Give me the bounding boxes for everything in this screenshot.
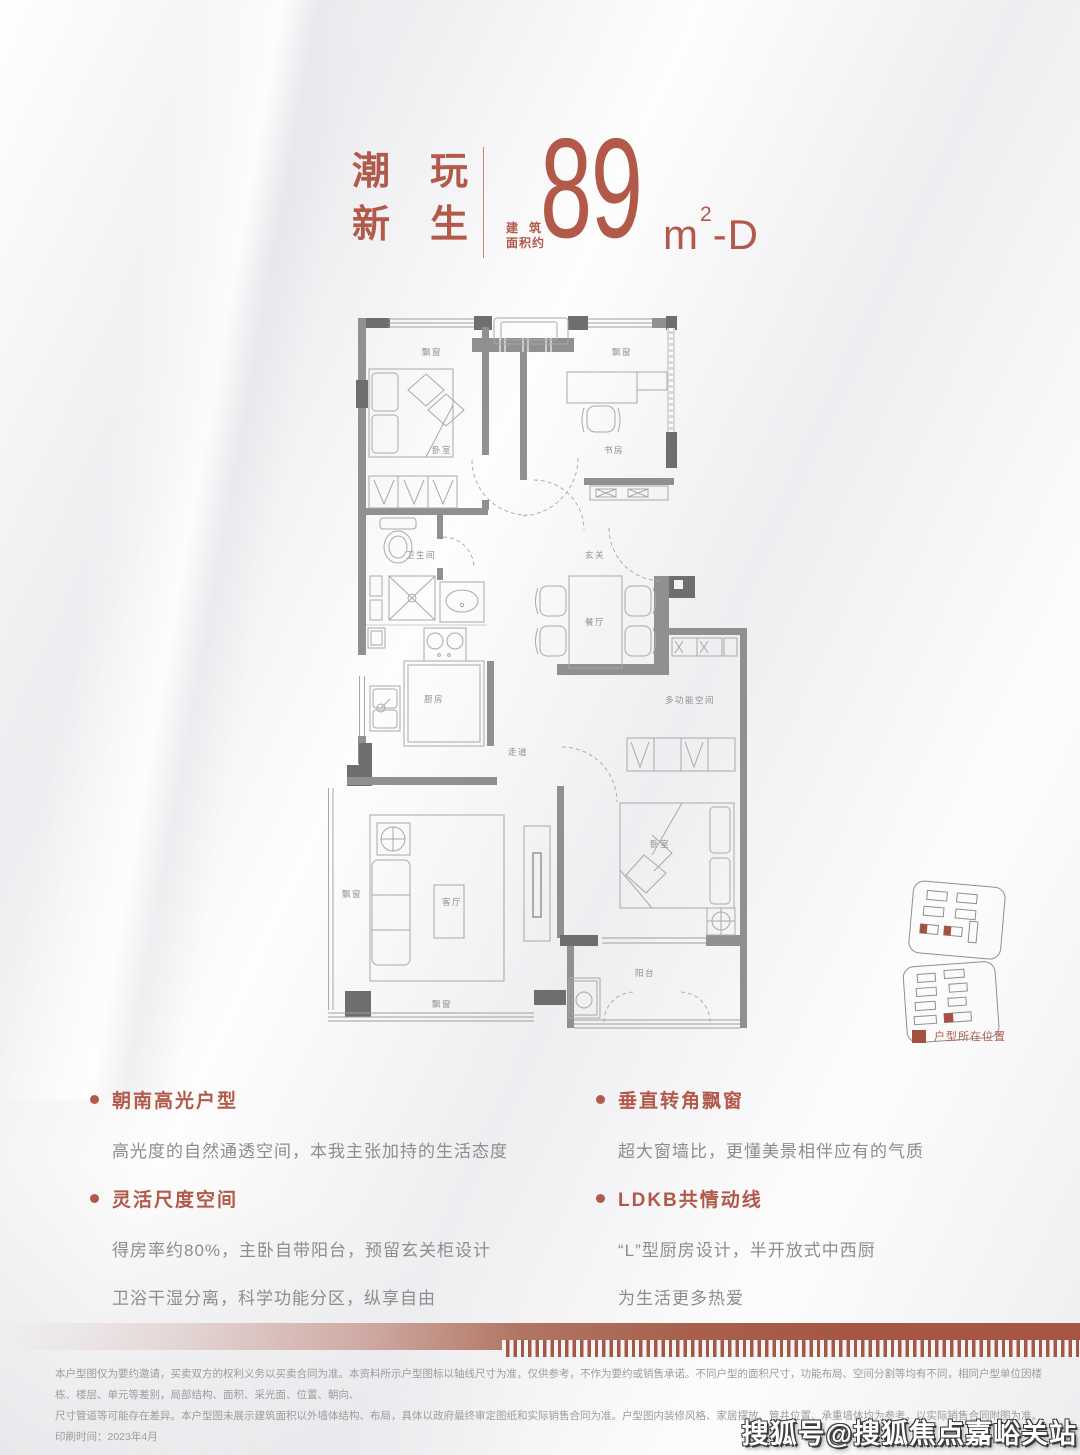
feature-block: 朝南高光户型 高光度的自然通透空间，本我主张加持的生活态度: [90, 1086, 560, 1162]
unit-suffix: -D: [713, 211, 759, 258]
siteplan-drawing: [893, 880, 1023, 1048]
label-study: 书房: [604, 445, 624, 455]
feature-heading-row: 垂直转角飘窗: [596, 1086, 1066, 1113]
feature-heading-row: LDKB共情动线: [596, 1185, 1066, 1212]
feature-block: LDKB共情动线 “L”型厨房设计，半开放式中西厨 为生活更多热爱: [596, 1185, 1066, 1309]
kitchen-fixtures: [368, 628, 484, 746]
features-right-column: 垂直转角飘窗 超大窗墙比，更懂美景相伴应有的气质 LDKB共情动线 “L”型厨房…: [596, 1086, 1066, 1332]
title-line2: 新生: [352, 199, 508, 252]
bathroom-fixtures: [370, 518, 484, 622]
feature-line: 超大窗墙比，更懂美景相伴应有的气质: [618, 1137, 1066, 1162]
feature-line: 得房率约80%，主卧自带阳台，预留玄关柜设计: [112, 1236, 560, 1261]
feature-heading: LDKB共情动线: [618, 1185, 763, 1212]
feature-line: 高光度的自然通透空间，本我主张加持的生活态度: [112, 1137, 560, 1162]
bullet-icon: [90, 1194, 99, 1203]
page-title: 潮玩 新生: [352, 146, 508, 252]
title-divider: [483, 147, 484, 258]
watermark: 搜狐号@搜狐焦点嘉峪关站: [742, 1412, 1077, 1451]
siteplan-block-upper: [908, 880, 1006, 960]
feature-block: 灵活尺度空间 得房率约80%，主卧自带阳台，预留玄关柜设计 卫浴干湿分离，科学功…: [90, 1185, 560, 1309]
disclaimer-line1: 本户型图仅为要约邀请，买卖双方的权利义务以买卖合同为准。本资料所示户型图标以轴线…: [55, 1364, 1045, 1406]
features-left-column: 朝南高光户型 高光度的自然通透空间，本我主张加持的生活态度 灵活尺度空间 得房率…: [90, 1086, 560, 1332]
feature-heading: 垂直转角飘窗: [618, 1086, 744, 1113]
label-master-bedroom: 卧室: [650, 839, 670, 849]
feature-line: 为生活更多热爱: [618, 1284, 1066, 1309]
label-bay-window-4: 飘窗: [432, 999, 452, 1009]
walls: [328, 316, 747, 1028]
label-balcony: 阳台: [635, 968, 655, 978]
area-unit: m2-D: [663, 203, 759, 259]
label-kitchen: 厨房: [424, 694, 444, 704]
bedroom-furniture: [369, 369, 464, 508]
label-bathroom: 卫生间: [406, 550, 436, 560]
feature-line: “L”型厨房设计，半开放式中西厨: [618, 1236, 1066, 1261]
master-bedroom-furniture: [620, 738, 735, 935]
feature-heading: 朝南高光户型: [112, 1086, 238, 1113]
area-number: 89: [540, 118, 642, 260]
unit-m: m: [663, 211, 699, 258]
feature-heading: 灵活尺度空间: [112, 1185, 238, 1212]
bullet-icon: [90, 1095, 99, 1104]
comb-pattern: [502, 1340, 1080, 1357]
siteplan-legend: 户型所在位置: [912, 1028, 1006, 1044]
label-living: 客厅: [442, 897, 462, 907]
label-corridor: 走道: [508, 747, 528, 757]
legend-swatch: [912, 1030, 926, 1043]
label-bay-window-2: 飘窗: [612, 347, 632, 357]
label-bay-window-3: 飘窗: [342, 889, 362, 899]
title-line1: 潮玩: [352, 146, 508, 199]
multi-room-closet: [672, 638, 737, 656]
bullet-icon: [596, 1095, 605, 1104]
bullet-icon: [596, 1194, 605, 1203]
floorplan-drawing: 飘窗 飘窗 卧室 书房 卫生间 玄关 餐厅 厨房 多功能空间 走道 飘窗 客厅 …: [322, 310, 764, 1042]
label-multi-room: 多功能空间: [665, 695, 715, 705]
label-bedroom: 卧室: [432, 445, 452, 455]
feature-block: 垂直转角飘窗 超大窗墙比，更懂美景相伴应有的气质: [596, 1086, 1066, 1162]
unit-sup: 2: [700, 203, 713, 226]
label-bay-window-1: 飘窗: [422, 347, 442, 357]
label-foyer: 玄关: [585, 550, 605, 560]
feature-heading-row: 朝南高光户型: [90, 1086, 560, 1113]
feature-heading-row: 灵活尺度空间: [90, 1185, 560, 1212]
label-dining: 餐厅: [585, 617, 605, 627]
legend-label: 户型所在位置: [934, 1028, 1006, 1044]
feature-line: 卫浴干湿分离，科学功能分区，纵享自由: [112, 1284, 560, 1309]
